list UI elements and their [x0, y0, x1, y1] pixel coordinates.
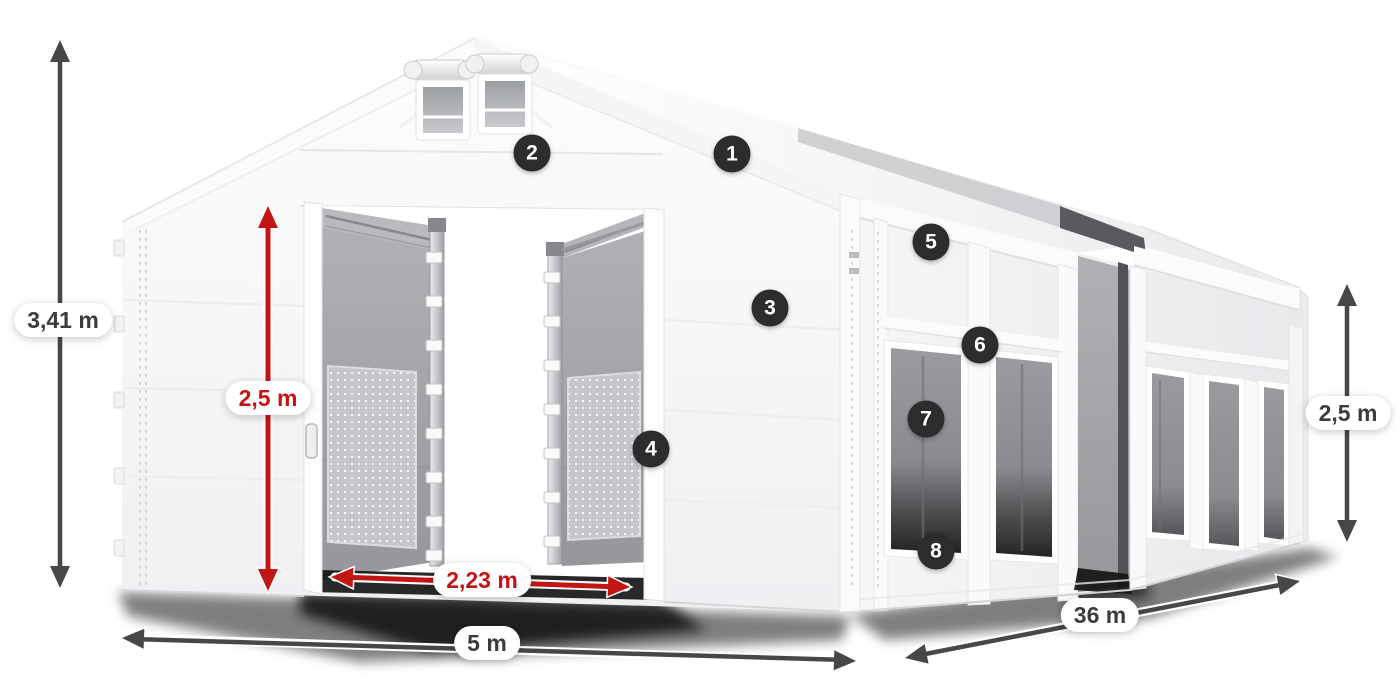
tent-drawing	[0, 0, 1400, 700]
callout-badge-4[interactable]: 4	[633, 431, 670, 468]
side-post	[1245, 379, 1258, 551]
right-door-edge	[644, 208, 664, 601]
callout-badge-5[interactable]: 5	[913, 224, 950, 261]
door-handle	[306, 424, 317, 458]
dim-label-front-width: 5 m	[454, 626, 520, 660]
dim-label-total-height: 3,41 m	[14, 303, 112, 337]
side-window-5	[1258, 380, 1290, 546]
side-post	[1190, 372, 1203, 550]
side-window-2	[990, 350, 1058, 564]
dim-label-side-height: 2,5 m	[1306, 396, 1391, 430]
dim-label-side-length: 36 m	[1061, 598, 1139, 632]
callout-badge-7[interactable]: 7	[908, 401, 945, 438]
side-window-3	[1146, 366, 1190, 541]
side-post	[1130, 266, 1146, 590]
side-post	[1058, 264, 1078, 601]
dim-label-door-width: 2,23 m	[433, 563, 531, 597]
gable-vent-right	[478, 74, 532, 134]
mesh-panel-right	[568, 372, 640, 540]
gable-vent-left	[416, 80, 470, 140]
mesh-panel-left	[328, 366, 416, 548]
callout-badge-1[interactable]: 1	[714, 136, 751, 173]
dim-label-door-height: 2,5 m	[226, 381, 311, 415]
side-door-pole	[1118, 262, 1128, 588]
door-header	[300, 150, 662, 210]
callout-badge-8[interactable]: 8	[918, 533, 955, 570]
side-window-4	[1203, 374, 1245, 552]
callout-badge-6[interactable]: 6	[962, 327, 999, 364]
side-window-1	[884, 340, 968, 560]
side-post	[968, 242, 990, 605]
front-doorway	[310, 206, 656, 600]
callout-badge-2[interactable]: 2	[514, 135, 551, 172]
side-post	[1289, 324, 1303, 545]
callout-badge-3[interactable]: 3	[752, 290, 789, 327]
side-door-opening	[1074, 256, 1132, 594]
product-illustration: 1 2 3 4 5 6 7 8 3,41 m 2,5 m 2,23 m 5 m …	[0, 0, 1400, 700]
